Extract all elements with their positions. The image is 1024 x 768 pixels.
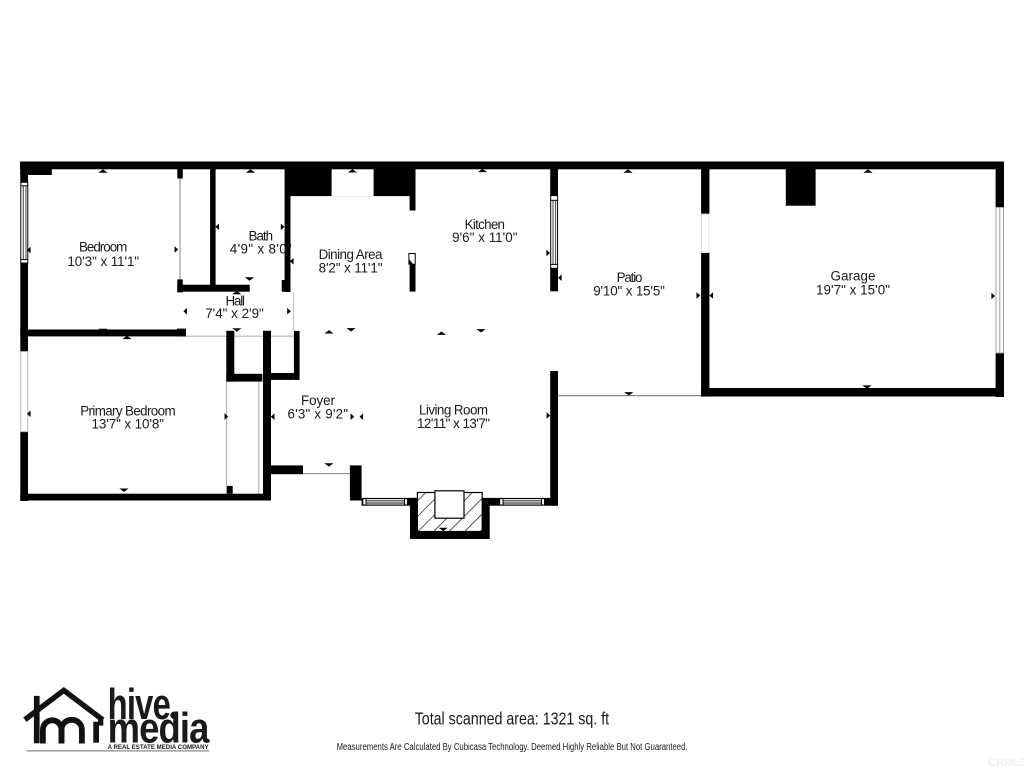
svg-text:Garage: Garage [831, 269, 876, 284]
svg-text:4'9" x 8'0": 4'9" x 8'0" [230, 241, 292, 256]
svg-text:8'2" x 11'1": 8'2" x 11'1" [319, 260, 383, 275]
svg-text:9'10" x 15'5": 9'10" x 15'5" [593, 284, 665, 299]
svg-text:6'3" x 9'2": 6'3" x 9'2" [288, 407, 349, 422]
svg-text:9'6" x 11'0": 9'6" x 11'0" [452, 230, 518, 245]
svg-text:19'7" x 15'0": 19'7" x 15'0" [816, 283, 890, 298]
svg-text:A REAL ESTATE MEDIA COMPANY: A REAL ESTATE MEDIA COMPANY [108, 744, 209, 751]
svg-text:10'3" x 11'1": 10'3" x 11'1" [67, 254, 139, 269]
svg-text:Measurements Are Calculated By: Measurements Are Calculated By Cubicasa … [337, 742, 688, 753]
svg-text:7'4" x 2'9": 7'4" x 2'9" [205, 306, 264, 321]
svg-text:13'7" x 10'8": 13'7" x 10'8" [92, 416, 165, 431]
svg-text:CRMLS: CRMLS [988, 757, 1024, 768]
svg-text:Total scanned area: 1321 sq. f: Total scanned area: 1321 sq. ft [415, 709, 610, 729]
svg-text:12'11" x 13'7": 12'11" x 13'7" [417, 416, 490, 431]
svg-text:Bedroom: Bedroom [79, 240, 127, 255]
